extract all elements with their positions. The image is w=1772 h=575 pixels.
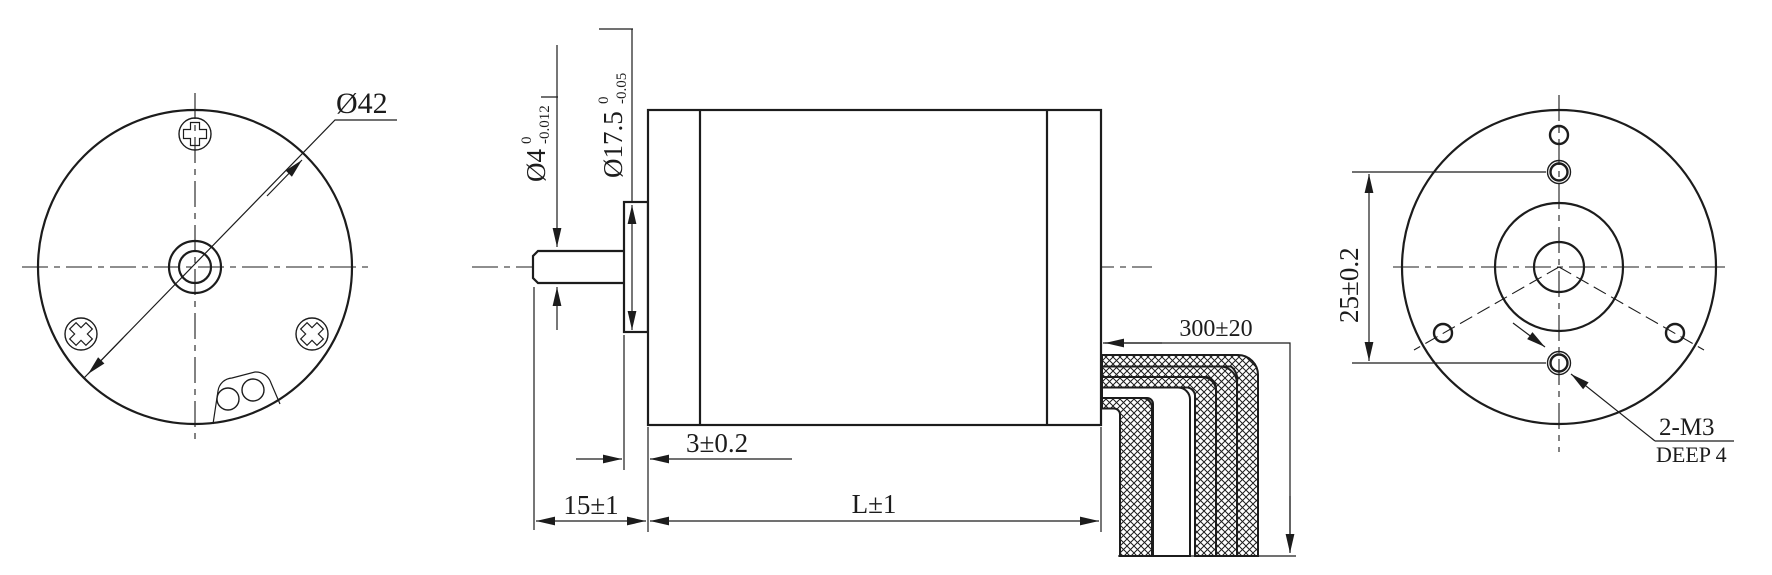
cable-wire xyxy=(1102,398,1152,556)
front-screw-top xyxy=(179,118,211,150)
rear-view: 25±0.2 2-M3 DEEP 4 xyxy=(1334,95,1734,467)
front-screw-lower-left xyxy=(58,311,103,356)
front-diameter-label: Ø42 xyxy=(336,87,388,120)
thread-note: 2-M3 DEEP 4 xyxy=(1513,323,1734,467)
cable-length-label: 300±20 xyxy=(1179,316,1252,342)
motor-body xyxy=(648,110,1101,425)
motor-shaft xyxy=(533,251,626,283)
boss-dia-tol-lower: -0.05 xyxy=(614,73,630,104)
shaft-dia-dimension: Ø4 0 -0.012 xyxy=(519,45,558,330)
grommet-wire-hole xyxy=(217,388,239,410)
drawing-sheet: Ø42 Ø4 0 -0.012 xyxy=(0,0,1772,575)
thread-note-label: 2-M3 xyxy=(1659,414,1715,441)
shaft-dia-tol-upper: 0 xyxy=(519,137,535,145)
pilot-boss xyxy=(624,202,648,332)
grommet-wire-hole xyxy=(242,379,264,401)
hole-spacing-label: 25±0.2 xyxy=(1334,247,1364,323)
boss-dia-label: Ø17.5 xyxy=(598,111,628,178)
shaft-length-dimension: 15±1 xyxy=(536,490,646,521)
cable-bundle xyxy=(1102,355,1296,556)
drawing-canvas: Ø42 Ø4 0 -0.012 xyxy=(0,0,1772,575)
shaft-dia-tol-lower: -0.012 xyxy=(537,105,553,144)
front-diameter-dimension: Ø42 xyxy=(84,87,397,378)
body-length-dimension: L±1 xyxy=(650,489,1099,521)
boss-length-label: 3±0.2 xyxy=(686,428,748,458)
shaft-dia-label: Ø4 xyxy=(521,149,551,182)
body-length-label: L±1 xyxy=(852,489,897,519)
side-view: Ø4 0 -0.012 Ø17.5 0 -0.05 xyxy=(472,29,1296,556)
thread-depth-label: DEEP 4 xyxy=(1656,442,1727,467)
front-view: Ø42 xyxy=(22,87,397,442)
boss-dia-tol-upper: 0 xyxy=(596,97,612,105)
shaft-length-label: 15±1 xyxy=(563,490,618,520)
boss-length-dimension: 3±0.2 xyxy=(576,428,792,459)
